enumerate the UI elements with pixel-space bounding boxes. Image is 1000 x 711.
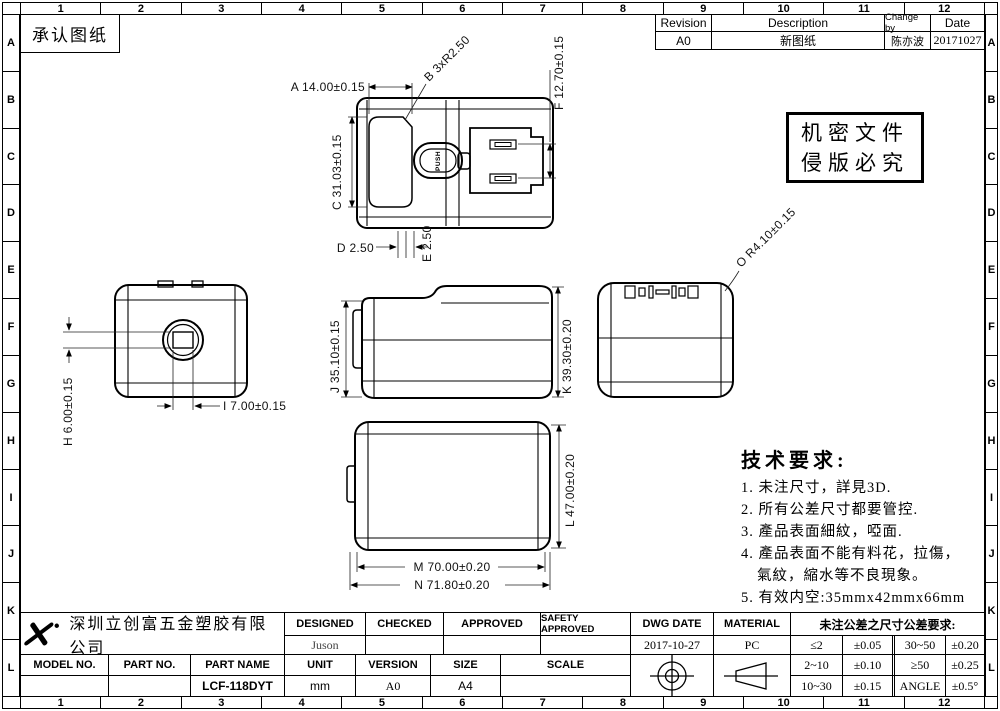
company-logo (21, 620, 61, 648)
dim-i-label: I 7.00±0.15 (223, 399, 286, 413)
top-view-drawing: PUSH A 14.00±0.15 B 3xR2.50 C 31.03±0.15… (291, 33, 566, 262)
company-name: 深圳立创富五金塑胶有限公司 (69, 610, 284, 658)
projection-symbol-cell (630, 654, 714, 697)
checked-header: CHECKED (365, 612, 444, 636)
taper-symbol-icon (724, 658, 780, 694)
dim-n-label: N 71.80±0.20 (414, 578, 490, 592)
tolerance-value: ±0.05 (842, 635, 893, 655)
push-latch-label: PUSH (435, 151, 442, 171)
tolerance-range: ANGLE (892, 675, 946, 697)
tech-line: 3. 產品表面細紋，啞面. (741, 521, 987, 543)
date-value: 20171027 (930, 31, 985, 50)
revision-header: Revision (655, 14, 712, 32)
tolerance-value: ±0.25 (945, 654, 985, 676)
description-value: 新图纸 (711, 31, 885, 50)
material-value: PC (713, 635, 791, 655)
checked-value (365, 635, 444, 655)
material-header: MATERIAL (713, 612, 791, 636)
unit-value: mm (284, 675, 356, 697)
size-value: A4 (430, 675, 501, 697)
part-no-value (108, 675, 191, 697)
scale-header: SCALE (500, 654, 631, 676)
tolerance-range: ≤2 (790, 635, 843, 655)
drawing-sheet: 123456789101112 123456789101112 ABCDEFGH… (0, 0, 1000, 711)
confidential-line2: 侵版必究 (801, 148, 909, 178)
approved-value (443, 635, 541, 655)
title-block: 深圳立创富五金塑胶有限公司 MODEL NO. PART NO. PART NA… (20, 612, 985, 697)
front-view-drawing: O R4.10±0.15 (598, 205, 798, 397)
dim-f-label: F 12.70±0.15 (552, 36, 566, 110)
part-name-header: PART NAME (190, 654, 285, 676)
safety-approved-header: SAFETY APPROVED (540, 612, 631, 636)
confidential-line1: 机密文件 (801, 118, 909, 148)
company-cell: 深圳立创富五金塑胶有限公司 (20, 612, 285, 655)
projection-symbol-icon (642, 655, 702, 697)
vent-slots (625, 286, 698, 298)
tolerance-range: 10~30 (790, 675, 843, 697)
dim-e-label: E 2.50 (420, 225, 434, 262)
approval-title: 承认图纸 (32, 21, 108, 46)
side-view-drawing: J 35.10±0.15 K 39.30±0.20 (328, 286, 574, 398)
dim-k-label: K 39.30±0.20 (560, 319, 574, 394)
version-header: VERSION (355, 654, 431, 676)
approval-title-box: 承认图纸 (20, 14, 120, 53)
change-by-value: 陈亦波 (884, 31, 931, 50)
tech-line: 5. 有效内空:35mmx42mmx66mm (741, 587, 987, 609)
tolerance-value: ±0.10 (842, 654, 893, 676)
dim-a-label: A 14.00±0.15 (291, 80, 365, 94)
rear-view-drawing: H 6.00±0.15 I 7.00±0.15 (61, 281, 286, 446)
tolerance-value: ±0.20 (945, 635, 985, 655)
dim-c-label: C 31.03±0.15 (330, 134, 344, 210)
version-value: A0 (355, 675, 431, 697)
tolerance-value: ±0.5° (945, 675, 985, 697)
approved-header: APPROVED (443, 612, 541, 636)
size-header: SIZE (430, 654, 501, 676)
part-no-header: PART NO. (108, 654, 191, 676)
tech-line: 氣紋，縮水等不良現象。 (741, 565, 987, 587)
tolerance-range: 30~50 (892, 635, 946, 655)
bottom-view-drawing: L 47.00±0.20 M 70.00±0.20 N 71.80±0.20 (347, 422, 577, 592)
confidential-stamp: 机密文件 侵版必究 (786, 112, 924, 183)
scale-value (500, 675, 631, 697)
model-no-header: MODEL NO. (20, 654, 109, 676)
dwg-date-header: DWG DATE (630, 612, 714, 636)
dim-h-label: H 6.00±0.15 (61, 377, 75, 446)
dim-m-label: M 70.00±0.20 (414, 560, 491, 574)
designed-header: DESIGNED (284, 612, 366, 636)
dim-j-label: J 35.10±0.15 (328, 320, 342, 393)
tech-title: 技术要求: (741, 444, 987, 473)
date-header: Date (930, 14, 985, 32)
technical-requirements: 技术要求: 1. 未注尺寸，詳見3D. 2. 所有公差尺寸都要管控. 3. 產品… (741, 444, 987, 609)
dwg-date-value: 2017-10-27 (630, 635, 714, 655)
tolerance-range: ≥50 (892, 654, 946, 676)
tech-line: 4. 產品表面不能有料花，拉傷， (741, 543, 987, 565)
tolerance-value: ±0.15 (842, 675, 893, 697)
revision-value: A0 (655, 31, 712, 50)
taper-symbol-cell (713, 654, 791, 697)
tolerance-title: 未注公差之尺寸公差要求: (790, 612, 985, 636)
revision-table: Revision Description Change by Date A0 新… (655, 14, 985, 50)
part-name-value: LCF-118DYT (190, 675, 285, 697)
tech-line: 2. 所有公差尺寸都要管控. (741, 499, 987, 521)
tolerance-range: 2~10 (790, 654, 843, 676)
model-no-value (20, 675, 109, 697)
description-header: Description (711, 14, 885, 32)
unit-header: UNIT (284, 654, 356, 676)
safety-approved-value (540, 635, 631, 655)
designed-value: Juson (284, 635, 366, 655)
dim-o-label: O R4.10±0.15 (733, 205, 798, 270)
dim-b-label: B 3xR2.50 (421, 33, 472, 84)
tech-line: 1. 未注尺寸，詳見3D. (741, 477, 987, 499)
dim-l-label: L 47.00±0.20 (563, 454, 577, 527)
dim-d-label: D 2.50 (337, 241, 374, 255)
change-by-header: Change by (884, 14, 931, 32)
